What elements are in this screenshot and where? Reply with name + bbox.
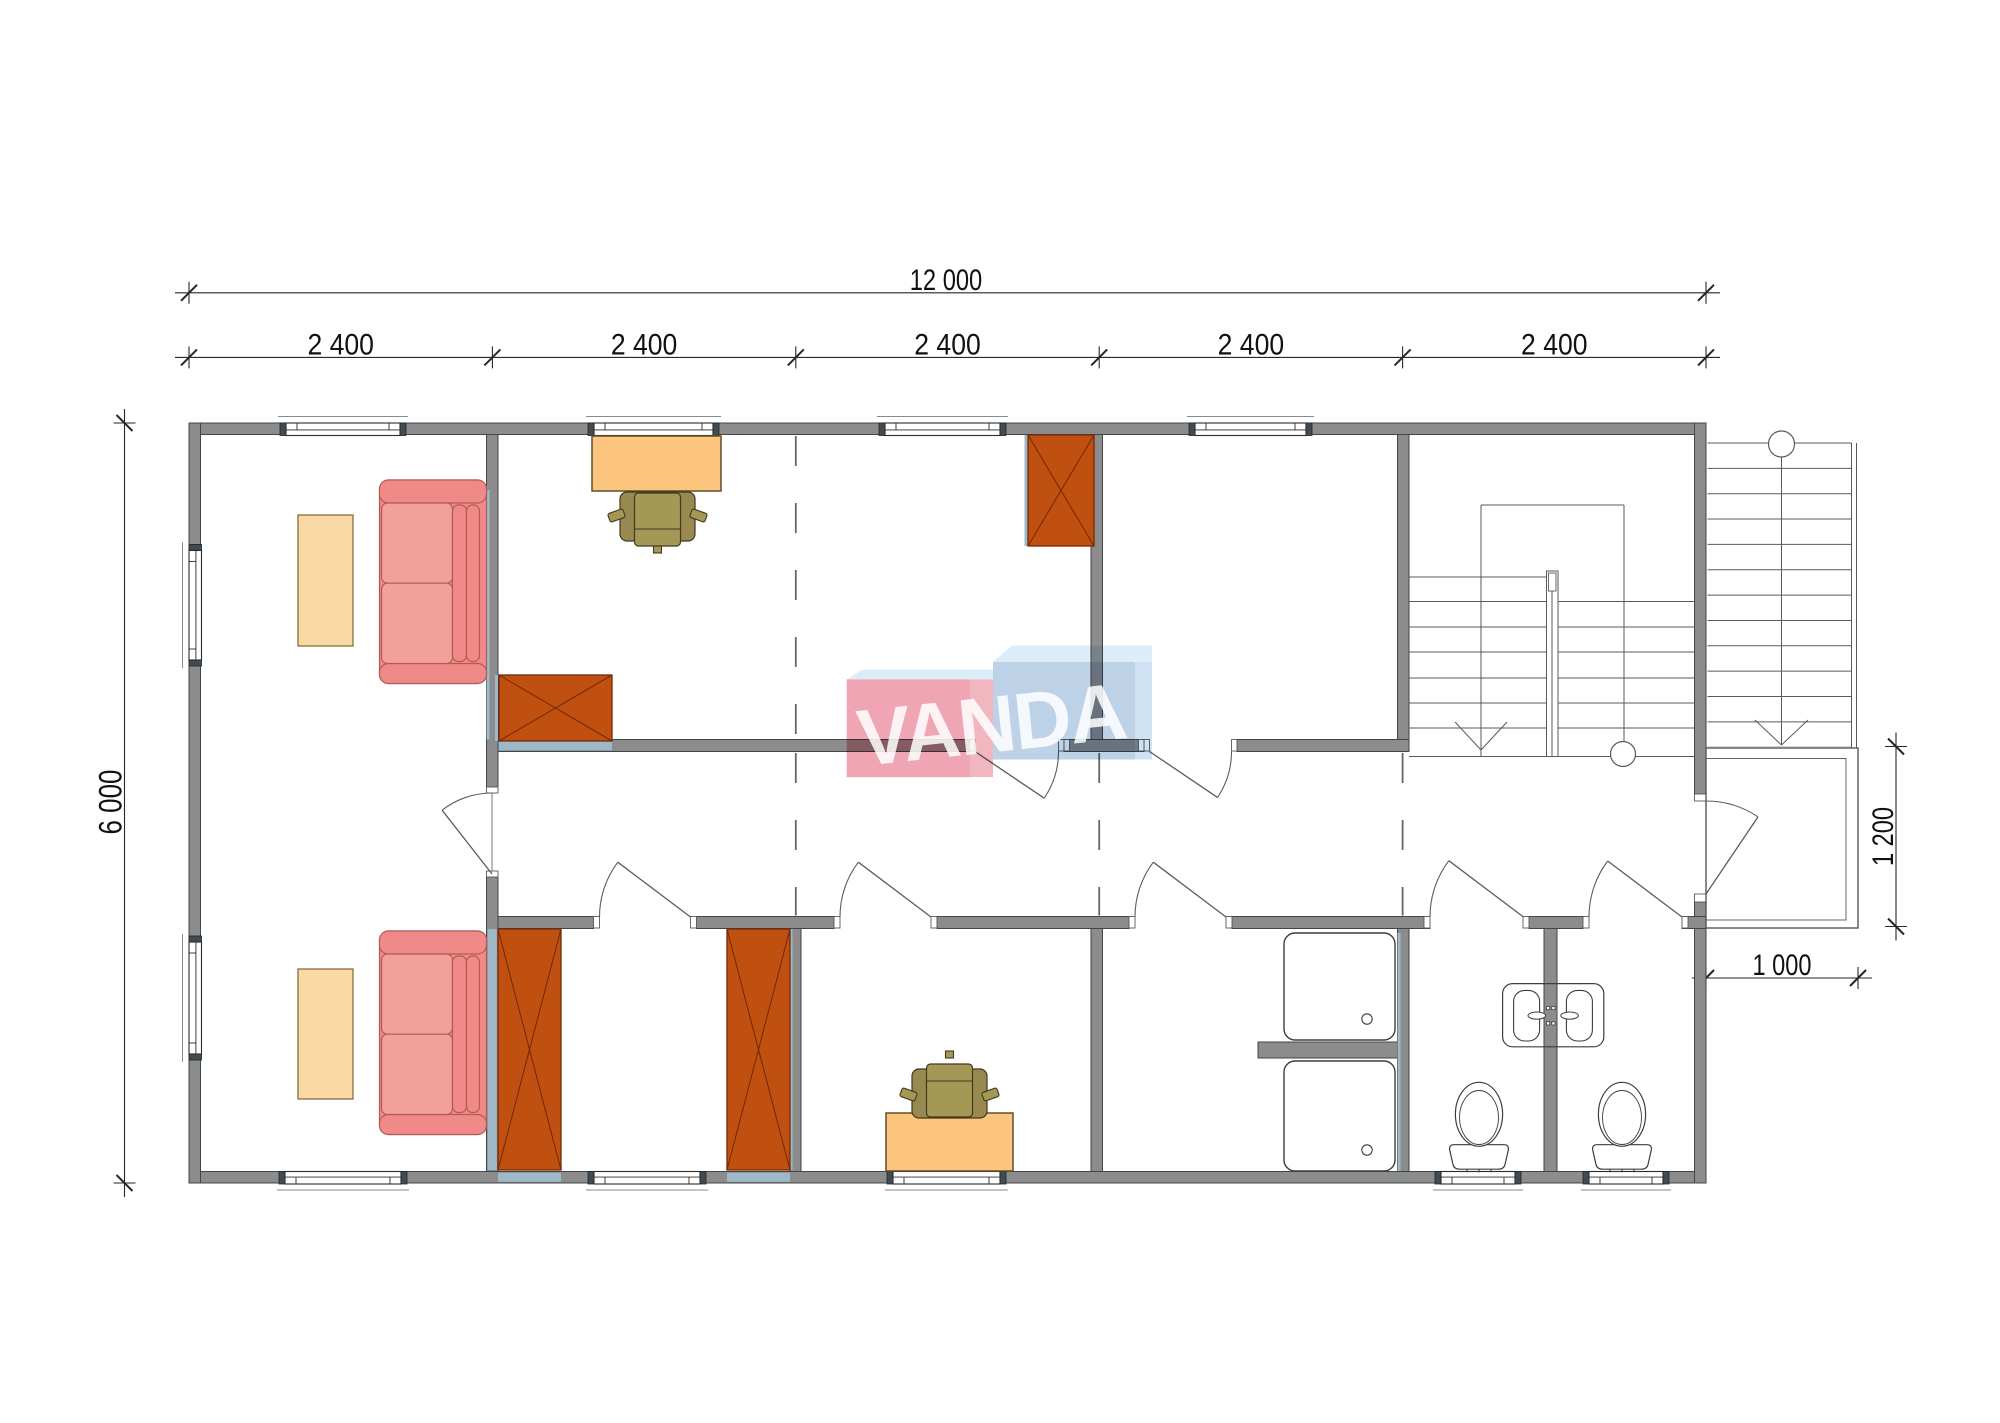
svg-text:2 400: 2 400 bbox=[914, 329, 981, 362]
svg-text:6 000: 6 000 bbox=[93, 770, 129, 835]
svg-text:2 400: 2 400 bbox=[307, 329, 374, 362]
svg-text:12 000: 12 000 bbox=[910, 264, 983, 297]
svg-text:1 000: 1 000 bbox=[1753, 949, 1812, 982]
svg-text:2 400: 2 400 bbox=[1218, 329, 1285, 362]
svg-text:1 200: 1 200 bbox=[1867, 807, 1900, 866]
svg-text:2 400: 2 400 bbox=[1521, 329, 1588, 362]
svg-text:2 400: 2 400 bbox=[611, 329, 678, 362]
